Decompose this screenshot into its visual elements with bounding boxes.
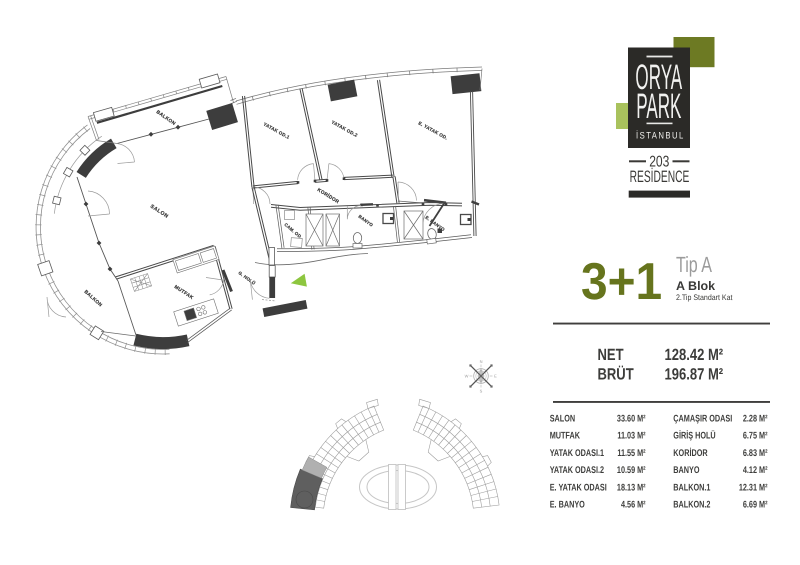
svg-text:BALKON.1: BALKON.1 [673,482,711,493]
svg-text:MUTFAK: MUTFAK [550,431,580,442]
svg-text:E. YATAK ODASI: E. YATAK ODASI [550,482,607,493]
svg-text:2.Tip Standart Kat: 2.Tip Standart Kat [676,293,733,302]
svg-text:6.69 M²: 6.69 M² [743,500,768,511]
svg-text:PARK: PARK [636,86,681,126]
svg-text:YATAK ODASI.1: YATAK ODASI.1 [550,448,605,459]
svg-text:11.03 M²: 11.03 M² [617,431,646,442]
svg-text:N: N [480,359,483,364]
svg-text:196.87 M²: 196.87 M² [665,366,724,384]
svg-text:33.60 M²: 33.60 M² [617,414,646,425]
svg-text:12.31 M²: 12.31 M² [739,482,768,493]
svg-text:E: E [494,373,497,378]
svg-text:NET: NET [598,346,624,364]
svg-text:RESİDENCE: RESİDENCE [630,167,690,186]
svg-text:2.28 M²: 2.28 M² [743,414,768,425]
svg-text:3+1: 3+1 [581,253,662,311]
svg-text:Tip A: Tip A [676,252,712,277]
svg-text:SALON: SALON [550,414,575,425]
svg-text:ÇAMAŞIR ODASI: ÇAMAŞIR ODASI [673,414,732,425]
svg-text:BRÜT: BRÜT [598,366,634,384]
svg-text:GİRİŞ HOLÜ: GİRİŞ HOLÜ [673,430,715,442]
svg-text:4.12 M²: 4.12 M² [743,465,768,476]
svg-text:11.55 M²: 11.55 M² [617,448,646,459]
svg-text:A Blok: A Blok [676,279,715,293]
svg-text:6.83 M²: 6.83 M² [743,448,768,459]
svg-text:E. BANYO: E. BANYO [550,500,585,511]
svg-text:BALKON.2: BALKON.2 [673,500,710,511]
svg-text:4.56 M²: 4.56 M² [621,500,646,511]
svg-text:18.13 M²: 18.13 M² [617,482,646,493]
svg-text:KORİDOR: KORİDOR [673,447,707,459]
svg-text:6.75 M²: 6.75 M² [743,431,768,442]
svg-text:128.42 M²: 128.42 M² [665,346,724,364]
svg-text:YATAK ODASI.2: YATAK ODASI.2 [550,465,604,476]
svg-text:10.59 M²: 10.59 M² [617,465,646,476]
svg-text:BANYO: BANYO [673,465,700,476]
svg-text:S: S [480,389,483,394]
svg-text:W: W [465,373,469,378]
svg-text:İSTANBUL: İSTANBUL [636,130,685,141]
